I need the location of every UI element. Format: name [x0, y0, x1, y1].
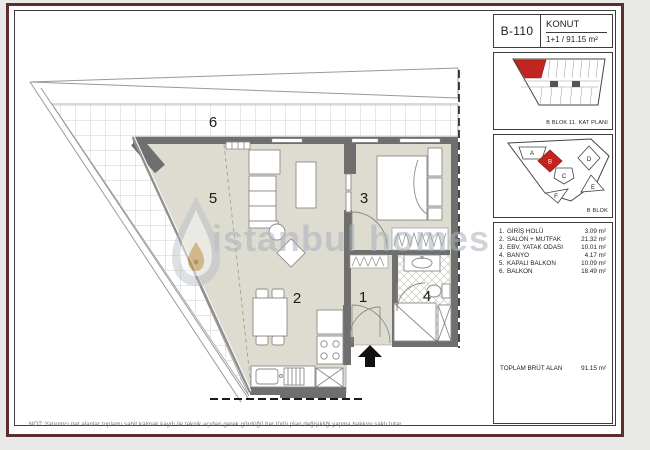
room-area: 3.09 m²	[585, 228, 606, 236]
room-number-1: 1	[359, 289, 367, 306]
room-list-row: 3. EBV. YATAK ODASI 10.01 m²	[499, 244, 606, 252]
room-name: BALKON	[507, 268, 533, 276]
room-name: KAPALI BALKON	[507, 260, 556, 268]
room-name: SALON + MUTFAK	[507, 236, 561, 244]
unit-layout-label: 1+1 / 91.15 m²	[546, 35, 607, 44]
disclaimer-note: NOT: Yatırımcı net alanlar toplamı sabit…	[29, 422, 469, 428]
room-list-row: 2. SALON + MUTFAK 21.32 m²	[499, 236, 606, 244]
site-block-a: A	[530, 151, 534, 157]
watermark-text: istanbul homes	[212, 218, 490, 259]
total-area-row: TOPLAM BRÜT ALAN 91.15 m²	[500, 365, 606, 372]
shaft	[438, 305, 451, 341]
site-block-b: B	[548, 160, 552, 166]
room-area: 4.17 m²	[585, 252, 606, 260]
room-number-4: 4	[423, 288, 431, 305]
shower	[394, 303, 436, 341]
total-area-value: 91.15 m²	[581, 365, 606, 372]
site-block-e: E	[591, 185, 595, 191]
radiator	[226, 142, 250, 149]
title-block-header: B-110 KONUT 1+1 / 91.15 m²	[493, 14, 613, 48]
site-block-c: C	[562, 174, 567, 180]
site-plan-drawing: A B C D E F	[494, 135, 612, 205]
room-area: 18.49 m²	[581, 268, 606, 276]
room-number-6: 6	[209, 114, 217, 131]
plan-sheet: istanbul homes 6 5 3 2 1 4 B-110 KONUT 1…	[6, 3, 624, 437]
key-plan-box: B BLOK 11. KAT PLANI	[493, 52, 613, 130]
site-plan-caption: B BLOK	[587, 208, 608, 214]
page-background: { "header": { "unit_code": "B-110", "typ…	[0, 0, 650, 450]
room-area: 21.32 m²	[581, 236, 606, 244]
tv-unit	[346, 174, 351, 212]
unit-type-label: KONUT	[546, 19, 607, 33]
bed	[377, 148, 442, 220]
key-plan-drawing	[494, 53, 612, 115]
windows	[272, 139, 440, 143]
room-area: 10.01 m²	[581, 244, 606, 252]
unit-code: B-110	[494, 15, 541, 47]
site-block-f: F	[554, 194, 558, 200]
room-name: GİRİŞ HOLÜ	[507, 228, 543, 236]
room-list-row: 6. BALKON 18.49 m²	[499, 268, 606, 276]
site-block-d: D	[587, 157, 592, 163]
floor-plan: istanbul homes 6 5 3 2 1 4	[13, 10, 493, 430]
total-area-label: TOPLAM BRÜT ALAN	[500, 365, 562, 372]
room-area: 10.09 m²	[581, 260, 606, 268]
key-plan-caption: B BLOK 11. KAT PLANI	[546, 120, 608, 126]
room-number-2: 2	[293, 290, 301, 307]
room-name: BANYO	[507, 252, 529, 260]
sofa	[249, 150, 280, 228]
room-list-row: 4. BANYO 4.17 m²	[499, 252, 606, 260]
room-list-row: 1. GİRİŞ HOLÜ 3.09 m²	[499, 228, 606, 236]
entrance-arrow	[358, 345, 382, 367]
site-plan-box: A B C D E F B BLOK	[493, 134, 613, 218]
room-number-5: 5	[209, 190, 217, 207]
room-name: EBV. YATAK ODASI	[507, 244, 563, 252]
room-list-row: 5. KAPALI BALKON 10.09 m²	[499, 260, 606, 268]
room-list-box: 1. GİRİŞ HOLÜ 3.09 m² 2. SALON + MUTFAK …	[493, 222, 613, 424]
room-number-3: 3	[360, 190, 368, 207]
coffee-table	[296, 162, 316, 208]
